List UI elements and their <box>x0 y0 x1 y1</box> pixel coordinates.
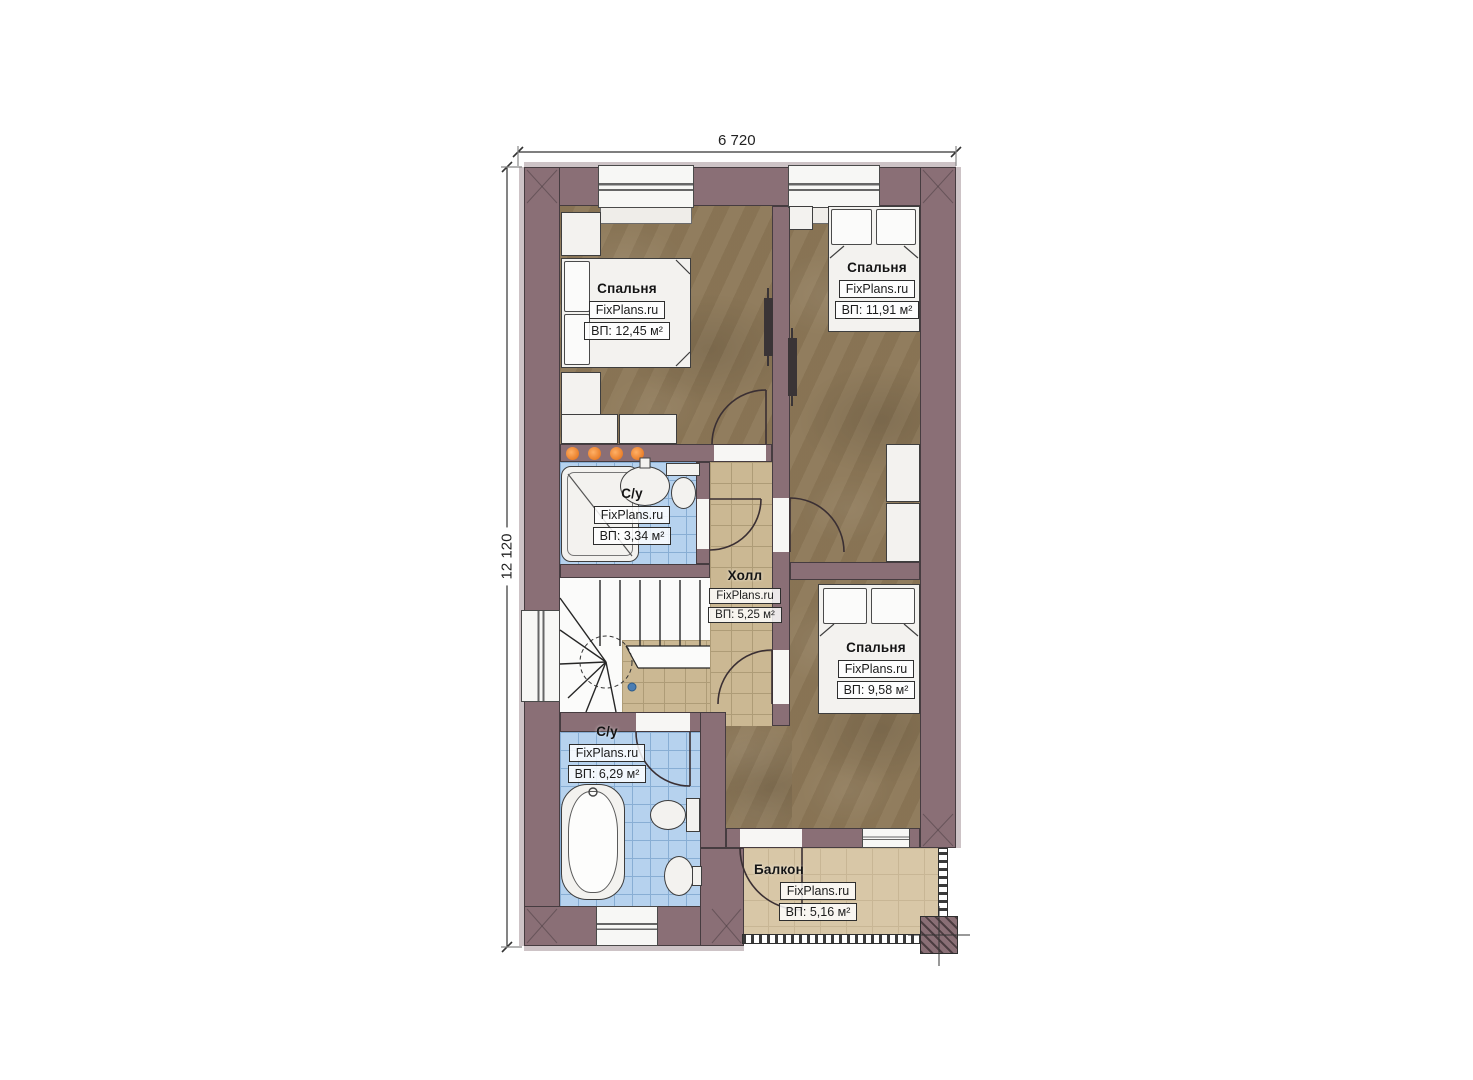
toilet-bowl <box>650 800 686 830</box>
wardrobe <box>886 444 920 502</box>
room-label-balcony: Балкон FixPlans.ru ВП: 5,16 м² <box>768 862 868 921</box>
window-stairs <box>521 610 560 702</box>
wardrobe <box>886 503 920 562</box>
room-label-bedroom-bottom: Спальня FixPlans.ru ВП: 9,58 м² <box>830 640 922 699</box>
floor-bedroom-bottom-ext <box>726 726 792 828</box>
room-label-hall: Холл FixPlans.ru ВП: 5,25 м² <box>705 568 785 623</box>
balcony-corner-post <box>920 916 958 954</box>
nightstand <box>561 372 601 418</box>
shelf <box>789 206 813 230</box>
watermark-box: FixPlans.ru <box>709 588 781 604</box>
wardrobe <box>561 414 618 444</box>
window-top-2 <box>788 165 880 208</box>
toilet-tank <box>686 798 700 832</box>
door-opening-bedroom1 <box>714 445 766 461</box>
floor-plan-canvas: Спальня FixPlans.ru ВП: 12,45 м² Спальня… <box>0 0 1473 1080</box>
room-label-bathroom-large: С/у FixPlans.ru ВП: 6,29 м² <box>562 724 652 783</box>
wall-outer-left <box>524 167 560 946</box>
window-balcony <box>862 828 910 848</box>
room-name: Спальня <box>847 260 907 275</box>
window-sill-1 <box>600 206 692 224</box>
pillow <box>831 209 872 245</box>
door-opening-bathroom-small <box>697 499 709 549</box>
room-name: С/у <box>596 724 618 739</box>
area-box: ВП: 3,34 м² <box>593 527 672 545</box>
room-name: Спальня <box>846 640 906 655</box>
room-name: Балкон <box>754 862 804 877</box>
window-top-1 <box>598 165 694 208</box>
watermark-box: FixPlans.ru <box>569 744 646 762</box>
bathtub <box>561 784 625 900</box>
watermark-box: FixPlans.ru <box>589 301 666 319</box>
area-box: ВП: 5,25 м² <box>708 607 782 623</box>
room-label-bathroom-small: С/у FixPlans.ru ВП: 3,34 м² <box>586 486 678 545</box>
wall-spot-icon <box>588 447 601 460</box>
area-box: ВП: 6,29 м² <box>568 765 647 783</box>
floor-stair-landing <box>622 640 710 712</box>
area-box: ВП: 11,91 м² <box>835 301 920 319</box>
wall-spot-icon <box>566 447 579 460</box>
bidet <box>664 856 694 896</box>
room-label-bedroom-top-right: Спальня FixPlans.ru ВП: 11,91 м² <box>827 260 927 319</box>
wall-above-stairs <box>560 564 710 578</box>
door-opening-bedroom2 <box>773 498 789 552</box>
watermark-box: FixPlans.ru <box>594 506 671 524</box>
room-name: Спальня <box>597 281 657 296</box>
wall-bathroom-large-right <box>700 712 726 848</box>
wall-bathroom-large-right-low <box>700 848 744 946</box>
bidet-tank <box>692 866 702 886</box>
pillow <box>871 588 915 624</box>
room-name: С/у <box>621 486 643 501</box>
toilet-tank <box>666 463 700 476</box>
nightstand <box>561 212 601 256</box>
balcony-railing-bottom <box>742 934 948 944</box>
area-box: ВП: 9,58 м² <box>837 681 916 699</box>
wall-bedroom2-bottom <box>790 562 920 580</box>
wall-bedrooms-divider <box>772 206 790 726</box>
watermark-box: FixPlans.ru <box>839 280 916 298</box>
door-opening-bedroom3 <box>773 650 789 704</box>
wardrobe <box>619 414 677 444</box>
door-opening-balcony <box>740 829 802 847</box>
wall-spot-icon <box>610 447 623 460</box>
wall-spot-icon <box>631 447 644 460</box>
pillow <box>823 588 867 624</box>
room-label-bedroom-top-left: Спальня FixPlans.ru ВП: 12,45 м² <box>575 281 679 340</box>
bathtub-inner <box>568 791 618 893</box>
dimension-width-label: 6 720 <box>712 132 762 149</box>
dimension-height-label: 12 120 <box>498 528 515 586</box>
area-box: ВП: 12,45 м² <box>584 322 670 340</box>
wall-outer-top <box>524 167 956 206</box>
room-name: Холл <box>728 568 763 583</box>
window-bottom <box>596 906 658 946</box>
watermark-box: FixPlans.ru <box>780 882 857 900</box>
watermark-box: FixPlans.ru <box>838 660 915 678</box>
pillow <box>876 209 916 245</box>
area-box: ВП: 5,16 м² <box>779 903 858 921</box>
